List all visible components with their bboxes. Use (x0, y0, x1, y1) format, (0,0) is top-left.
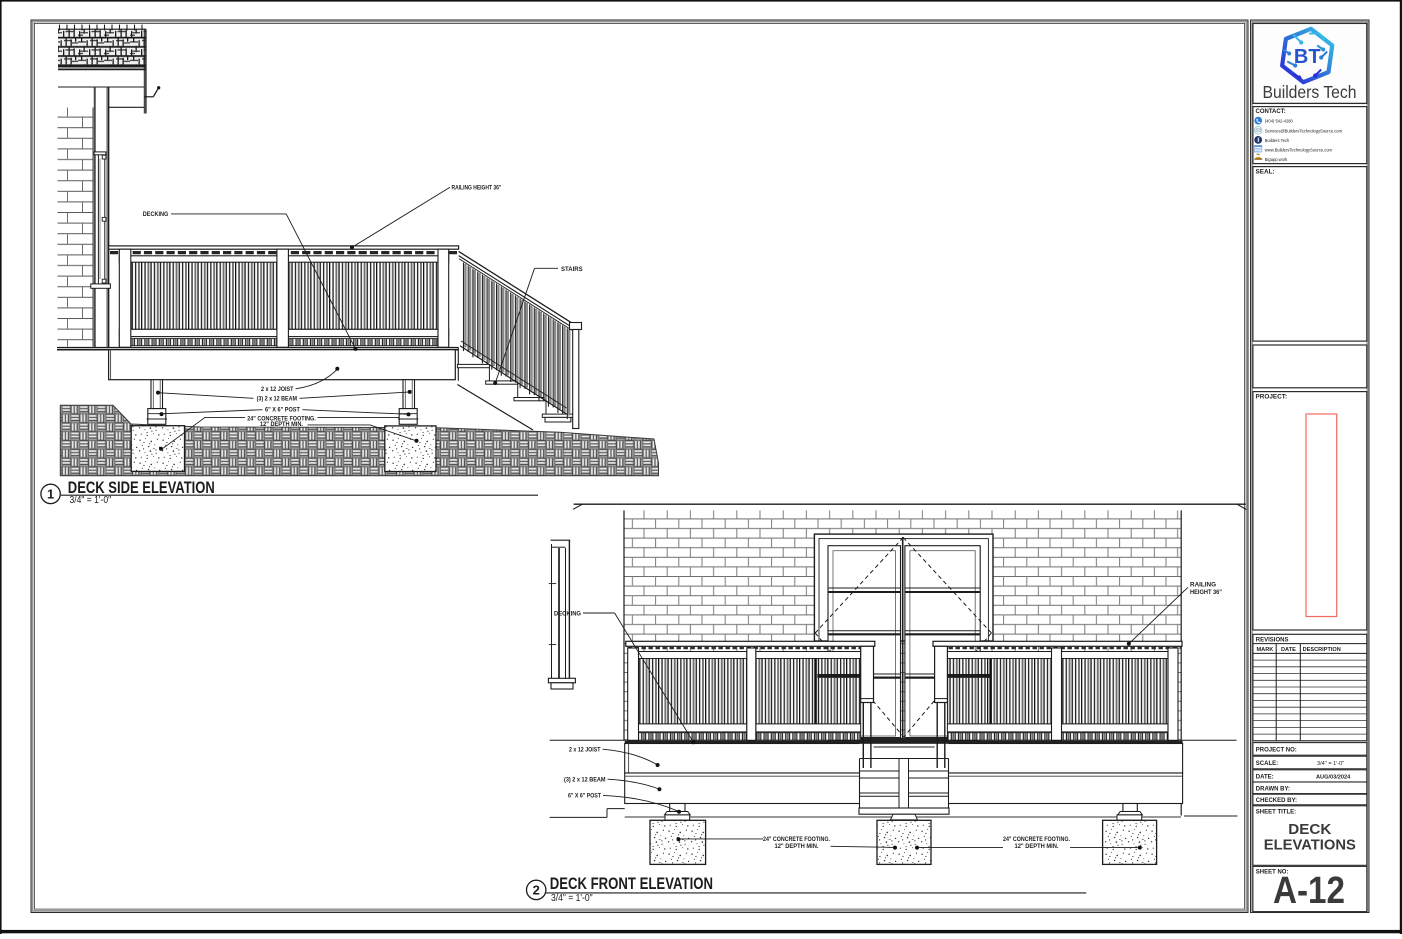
svg-text:Builders Tech: Builders Tech (1265, 138, 1290, 143)
svg-text:DECKING: DECKING (554, 610, 581, 617)
svg-text:CONTACT:: CONTACT: (1256, 109, 1286, 115)
svg-text:2 x 12 JOIST: 2 x 12 JOIST (569, 746, 601, 753)
svg-text:24" CONCRETE FOOTING.: 24" CONCRETE FOOTING. (763, 836, 830, 843)
svg-text:2 x 12 JOIST: 2 x 12 JOIST (261, 386, 294, 393)
svg-text:PROJECT:: PROJECT: (1256, 394, 1288, 401)
svg-text:DRAWN BY:: DRAWN BY: (1256, 786, 1290, 792)
svg-text:SHEET TITLE:: SHEET TITLE: (1256, 809, 1296, 815)
svg-text:RAILING: RAILING (1190, 582, 1216, 589)
svg-text:DESCRIPTION: DESCRIPTION (1303, 647, 1341, 653)
svg-text:3/4" = 1'-0": 3/4" = 1'-0" (1317, 761, 1344, 767)
svg-text:Builders Tech: Builders Tech (1263, 82, 1357, 102)
svg-text:(3) 2 x 12 BEAM: (3) 2 x 12 BEAM (564, 776, 606, 783)
svg-text:6" X 6" POST: 6" X 6" POST (265, 407, 300, 414)
svg-text:CHECKED BY:: CHECKED BY: (1256, 798, 1297, 804)
svg-text:DATE:: DATE: (1256, 774, 1274, 780)
svg-text:www.BuildersTechnologySource.c: www.BuildersTechnologySource.com (1265, 148, 1333, 153)
svg-text:DECK FRONT ELEVATION: DECK FRONT ELEVATION (550, 874, 713, 893)
svg-text:BT: BT (1294, 46, 1321, 68)
svg-text:6" X 6" POST: 6" X 6" POST (568, 793, 601, 800)
svg-text:AUG/03/2024: AUG/03/2024 (1316, 774, 1351, 780)
svg-text:MARK: MARK (1257, 647, 1274, 653)
svg-text:A-12: A-12 (1273, 870, 1345, 912)
svg-text:HEIGHT 36": HEIGHT 36" (1190, 589, 1222, 596)
svg-text:DECK SIDE ELEVATION: DECK SIDE ELEVATION (68, 478, 215, 497)
svg-text:12" DEPTH MIN.: 12" DEPTH MIN. (1015, 843, 1059, 850)
svg-text:(404) 542-4280: (404) 542-4280 (1265, 119, 1294, 124)
svg-text:SEAL:: SEAL: (1256, 168, 1275, 175)
svg-text:2: 2 (533, 882, 540, 897)
svg-text:Services@BuildersTechnologySou: Services@BuildersTechnologySource.com (1265, 128, 1343, 133)
svg-text:SCALE:: SCALE: (1256, 761, 1278, 767)
svg-text:REVISIONS: REVISIONS (1256, 638, 1289, 644)
svg-text:12" DEPTH MIN.: 12" DEPTH MIN. (260, 421, 303, 428)
svg-text:ELEVATIONS: ELEVATIONS (1264, 837, 1356, 853)
svg-text:24" CONCRETE FOOTING.: 24" CONCRETE FOOTING. (1003, 836, 1070, 843)
svg-text:1: 1 (47, 486, 54, 501)
svg-text:PROJECT NO:: PROJECT NO: (1256, 747, 1297, 753)
svg-text:3/4" = 1'-0": 3/4" = 1'-0" (70, 495, 112, 506)
svg-text:Bigapp.work: Bigapp.work (1265, 157, 1288, 162)
svg-text:(3) 2 x 12 BEAM: (3) 2 x 12 BEAM (257, 395, 297, 402)
svg-text:12" DEPTH MIN.: 12" DEPTH MIN. (775, 843, 819, 850)
svg-text:DECKING: DECKING (143, 211, 169, 218)
svg-text:DECK: DECK (1288, 822, 1332, 838)
svg-text:STAIRS: STAIRS (561, 266, 583, 273)
svg-text:DATE: DATE (1281, 647, 1296, 653)
svg-text:3/4" = 1'-0": 3/4" = 1'-0" (551, 893, 593, 904)
svg-text:RAILING HEIGHT 36": RAILING HEIGHT 36" (452, 185, 502, 192)
